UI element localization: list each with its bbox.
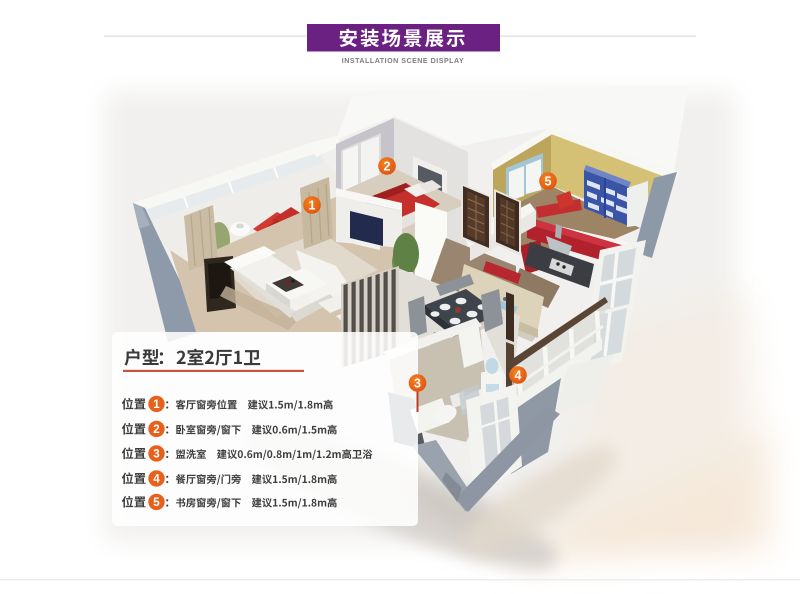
svg-text:3: 3 bbox=[153, 448, 159, 460]
svg-text:1: 1 bbox=[309, 199, 316, 213]
svg-text:INSTALLATION SCENE DISPLAY: INSTALLATION SCENE DISPLAY bbox=[342, 57, 464, 65]
svg-text:5: 5 bbox=[153, 497, 160, 509]
svg-text:4: 4 bbox=[515, 369, 522, 383]
svg-text:1: 1 bbox=[153, 399, 160, 411]
svg-text:2: 2 bbox=[384, 160, 391, 174]
svg-text:4: 4 bbox=[153, 473, 160, 485]
svg-text:3: 3 bbox=[414, 377, 421, 391]
svg-text:2: 2 bbox=[153, 424, 159, 436]
svg-text:5: 5 bbox=[545, 175, 552, 189]
